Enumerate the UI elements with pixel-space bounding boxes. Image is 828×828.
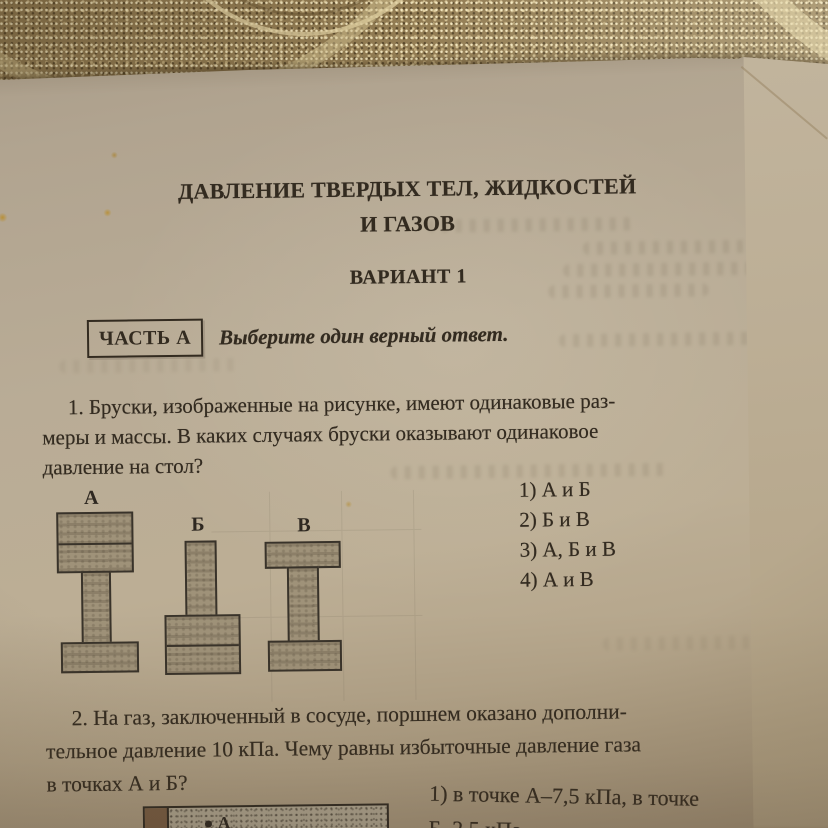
title-line-1: ДАВЛЕНИЕ ТВЕРДЫХ ТЕЛ, ЖИДКОСТЕЙ: [27, 171, 787, 206]
photo-scene: ДАВЛЕНИЕ ТВЕРДЫХ ТЕЛ, ЖИДКОСТЕЙ И ГАЗОВ …: [0, 0, 828, 828]
bar-v-top-slab: [265, 541, 341, 569]
bars-figure: А Б В: [41, 480, 394, 710]
option-3: 3) А, Б и В: [519, 534, 616, 565]
point-a-label: А: [218, 813, 231, 828]
test-paper: ДАВЛЕНИЕ ТВЕРДЫХ ТЕЛ, ЖИДКОСТЕЙ И ГАЗОВ …: [0, 0, 828, 828]
part-a-box: ЧАСТЬ А: [87, 319, 203, 358]
q2-option-1-line-1: 1) в точке А–7,5 кПа, в точке: [429, 776, 699, 816]
bar-a-column: [81, 570, 112, 644]
option-1: 1) А и Б: [519, 474, 616, 505]
paper-shadow-wrap: ДАВЛЕНИЕ ТВЕРДЫХ ТЕЛ, ЖИДКОСТЕЙ И ГАЗОВ …: [0, 0, 828, 828]
bar-v-column: [287, 566, 320, 643]
bleed-through-smudge: [603, 636, 773, 651]
question-2-options: 1) в точке А–7,5 кПа, в точке Б–2,5 кПа: [428, 776, 699, 828]
bleed-through-smudge: [59, 358, 239, 373]
bar-a-label: А: [84, 487, 99, 510]
bar-a-base: [61, 641, 139, 673]
bar-b-column: [185, 540, 218, 616]
option-4: 4) А и В: [520, 564, 617, 595]
bar-a-top-slab: [56, 511, 134, 573]
option-2: 2) Б и В: [519, 504, 616, 535]
page-content: ДАВЛЕНИЕ ТВЕРДЫХ ТЕЛ, ЖИДКОСТЕЙ И ГАЗОВ …: [0, 0, 828, 828]
vessel-piston-wall: [145, 808, 170, 828]
part-a-label: ЧАСТЬ А: [99, 326, 191, 350]
bar-v-base: [268, 640, 342, 672]
paper-stain: [0, 213, 8, 222]
bar-v-label: В: [297, 514, 311, 537]
question-1-text: 1. Бруски, изображенные на рисунке, имею…: [42, 384, 755, 483]
question-1-options: 1) А и Б 2) Б и В 3) А, Б и В 4) А и В: [519, 474, 617, 595]
vessel-figure: А: [143, 803, 390, 828]
title-line-2: И ГАЗОВ: [28, 206, 788, 241]
instruction-text: Выберите один верный ответ.: [219, 322, 509, 351]
paper-stain: [111, 152, 118, 159]
point-marker-dot: [205, 820, 212, 827]
bar-b-base: [164, 614, 241, 675]
bar-b-label: Б: [191, 514, 205, 537]
vessel-point-a: А: [205, 813, 231, 828]
document-title: ДАВЛЕНИЕ ТВЕРДЫХ ТЕЛ, ЖИДКОСТЕЙ И ГАЗОВ: [27, 171, 788, 241]
